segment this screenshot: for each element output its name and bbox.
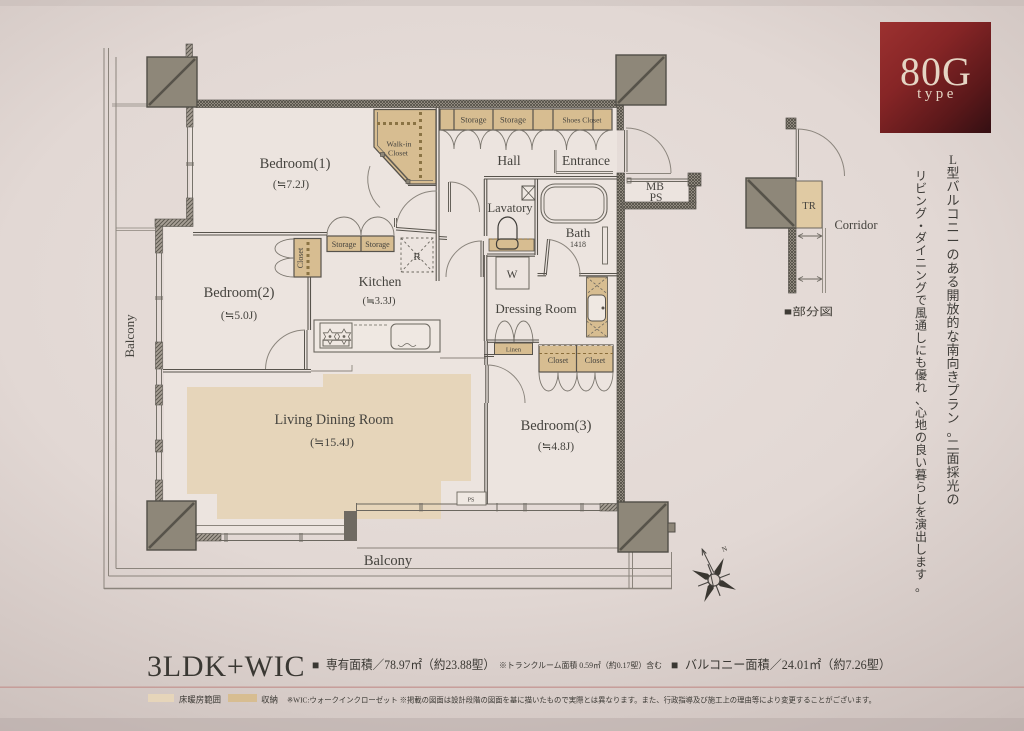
svg-text:type: type — [917, 86, 957, 102]
svg-text:Balcony: Balcony — [122, 314, 137, 358]
svg-text:Dressing Room: Dressing Room — [495, 301, 576, 316]
svg-text:Bedroom(1): Bedroom(1) — [260, 156, 331, 172]
svg-text:Closet: Closet — [388, 149, 409, 158]
svg-text:Lavatory: Lavatory — [487, 201, 533, 215]
svg-text:Living Dining Room: Living Dining Room — [274, 412, 393, 428]
svg-text:※WIC:ウォークインクローゼット ※掲載の図面は設計段階の: ※WIC:ウォークインクローゼット ※掲載の図面は設計段階の図面を基に描いたもの… — [287, 695, 876, 705]
svg-text:Storage: Storage — [332, 240, 357, 249]
svg-text:Hall: Hall — [497, 153, 520, 168]
svg-text:■: ■ — [671, 658, 678, 672]
svg-text:床暖房範囲: 床暖房範囲 — [179, 695, 221, 705]
svg-text:■部分図: ■部分図 — [784, 305, 833, 318]
svg-text:※トランクルーム面積 0.59㎡（約0.17堲）含む: ※トランクルーム面積 0.59㎡（約0.17堲）含む — [499, 660, 662, 670]
svg-text:の: の — [946, 492, 959, 507]
svg-text:Kitchen: Kitchen — [359, 274, 402, 289]
svg-text:Shoes Closet: Shoes Closet — [563, 116, 603, 125]
svg-text:(≒4.8J): (≒4.8J) — [538, 441, 574, 453]
svg-text:Bath: Bath — [566, 225, 591, 240]
svg-text:N: N — [721, 545, 729, 554]
svg-text:TR: TR — [802, 201, 815, 212]
svg-text:Linen: Linen — [506, 347, 522, 354]
svg-text:専有面積／78.97㎡（約23.88堲）: 専有面積／78.97㎡（約23.88堲） — [326, 657, 495, 672]
svg-text:バルコニー面積／24.01㎡（約7.26堲）: バルコニー面積／24.01㎡（約7.26堲） — [685, 657, 891, 672]
svg-text:PS: PS — [650, 192, 663, 204]
svg-text:Corridor: Corridor — [834, 218, 878, 232]
svg-text:R: R — [413, 251, 421, 263]
svg-text:Storage: Storage — [461, 115, 487, 125]
svg-text:(≒15.4J): (≒15.4J) — [310, 435, 354, 449]
svg-text:Bedroom(2): Bedroom(2) — [204, 285, 275, 301]
svg-text:(≒7.2J): (≒7.2J) — [273, 179, 309, 191]
svg-text:Storage: Storage — [365, 240, 390, 249]
svg-text:Entrance: Entrance — [562, 153, 610, 168]
svg-text:■: ■ — [312, 658, 319, 672]
svg-text:3LDK+WIC: 3LDK+WIC — [147, 650, 305, 683]
svg-text:Closet: Closet — [548, 356, 569, 365]
svg-text:収納: 収納 — [261, 695, 278, 705]
svg-text:1418: 1418 — [570, 240, 586, 249]
svg-text:Closet: Closet — [296, 247, 305, 268]
svg-text:Closet: Closet — [585, 356, 606, 365]
svg-text:(≒5.0J): (≒5.0J) — [221, 310, 257, 322]
svg-text:PS: PS — [468, 498, 475, 504]
svg-text:(≒3.3J): (≒3.3J) — [362, 296, 396, 307]
svg-text:W: W — [507, 269, 518, 281]
svg-text:Storage: Storage — [500, 115, 526, 125]
svg-text:。: 。 — [915, 580, 927, 594]
svg-text:Walk-in: Walk-in — [387, 140, 412, 149]
svg-text:Bedroom(3): Bedroom(3) — [521, 418, 592, 434]
svg-text:Balcony: Balcony — [364, 553, 413, 569]
